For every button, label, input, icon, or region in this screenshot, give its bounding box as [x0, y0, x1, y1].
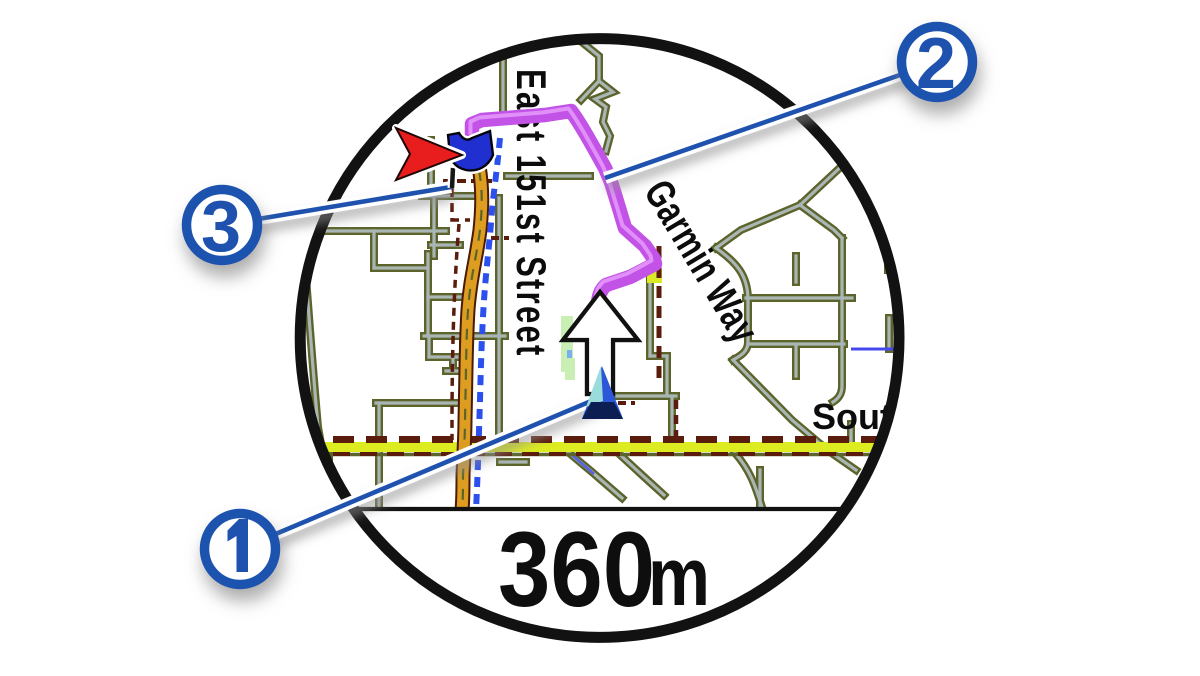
svg-text:2: 2	[916, 24, 956, 104]
svg-text:m: m	[648, 531, 710, 623]
svg-text:3: 3	[201, 187, 241, 267]
svg-text:360: 360	[498, 510, 655, 629]
